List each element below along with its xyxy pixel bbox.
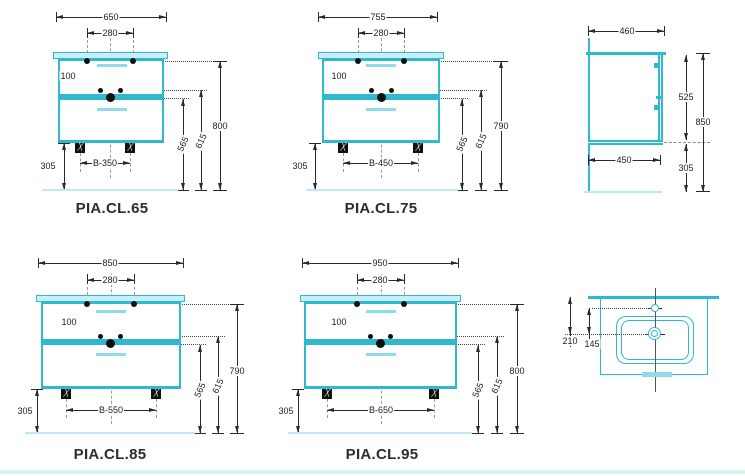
floor-line [288,432,472,434]
arrow-icon [176,261,183,265]
tick [475,190,487,191]
arrow-icon [568,327,572,334]
model-label: PIA.CL.85 [74,446,147,463]
arrow-icon [587,308,591,315]
mount-point [389,88,394,93]
dim-floor-gap-value: 305 [16,406,33,416]
countertop [53,52,168,59]
arrow-icon [397,278,404,282]
arrow-icon [149,408,156,412]
caster-foot-icon [429,389,439,399]
arrow-icon [495,336,499,343]
tick [404,28,405,38]
arrow-icon [684,133,688,140]
dim-bottom-depth-value: 450 [615,155,632,165]
arrow-icon [479,90,483,97]
tick [230,304,244,305]
arrow-icon [216,426,220,433]
ext-line [434,399,435,418]
arrow-icon [587,327,591,334]
tick [213,190,227,191]
arrow-icon [296,389,300,396]
dim-feet-span-value: B-350 [92,158,118,168]
tick [133,28,134,38]
arrow-icon [327,408,334,412]
arrow-icon [499,183,503,190]
arrow-icon [357,278,364,282]
mount-point [118,88,123,93]
arrow-icon [35,389,39,396]
arrow-icon [358,31,365,35]
wall-line [588,38,590,192]
caster-foot-icon [413,143,423,153]
arrow-icon [199,183,203,190]
floor-line [42,189,178,191]
tick [404,274,405,284]
arrow-icon [181,99,185,106]
arrow-icon [127,278,134,282]
arrow-icon [235,304,239,311]
dim-width-value: 755 [369,12,386,22]
mount-point [388,334,393,339]
arrow-icon [198,345,202,352]
tick [510,433,524,434]
arrow-icon [198,426,202,433]
arrow-icon [80,161,87,165]
arrow-icon [460,99,464,106]
arrow-icon [588,29,595,33]
arrow-icon [684,185,688,192]
tick [292,389,304,390]
dim-drain-height-value: 565 [192,380,208,400]
arrow-icon [684,144,688,151]
dim-mid-height-value: 615 [210,376,226,396]
arrow-icon [460,183,464,190]
dim-floor-gap-value: 305 [277,406,294,416]
model-label: PIA.CL.95 [346,446,419,463]
dim-faucet-span-value: 280 [372,28,389,38]
arrow-icon [451,261,458,265]
arrow-icon [126,31,133,35]
tick [166,12,167,22]
dim-floor-gap-value: 305 [677,163,694,173]
tick [472,433,484,434]
arrow-icon [87,31,94,35]
faucet-hole-marker [354,301,360,307]
countertop [586,52,666,55]
drain-marker [377,93,386,102]
floor-line [25,432,195,434]
dim-faucet-offset-value: 100 [330,317,347,327]
countertop [318,52,444,59]
dim-floor-gap-value: 305 [39,161,56,171]
dim-mid-height-value: 615 [193,131,209,151]
dim-feet-span-value: B-650 [368,405,394,415]
dim-drain-height-value: 565 [470,380,486,400]
countertop [300,295,461,302]
leader-line [592,308,651,309]
arrow-icon [568,297,572,304]
arrow-icon [218,183,222,190]
arrow-icon [56,15,63,19]
arrow-icon [87,278,94,282]
ext-line [130,153,131,172]
floor-line [306,189,458,191]
arrow-icon [653,158,660,162]
cabinet-bottom [588,140,663,145]
arrow-icon [343,161,350,165]
arrow-icon [159,15,166,19]
dim-faucet-offset-value: 100 [59,71,76,81]
tick [230,433,244,434]
tick [212,433,224,434]
arrow-icon [123,161,130,165]
dim-total-height-value: 790 [228,366,245,376]
arrow-icon [38,261,45,265]
arrow-icon [499,61,503,68]
countertop [36,295,185,302]
hinge-mark [654,105,658,110]
floor-line [584,191,662,193]
arrow-icon [495,426,499,433]
tick [195,190,207,191]
dim-drain-height-value: 565 [175,134,191,154]
model-label: PIA.CL.75 [345,200,418,217]
drain-marker [106,339,115,348]
mount-point [98,88,103,93]
caster-foot-icon [322,389,332,399]
tick [696,53,710,54]
arrow-icon [476,426,480,433]
faucet-hole-marker [401,301,407,307]
hinge-mark [654,63,658,68]
tick [194,433,206,434]
drawer-handle [366,310,396,313]
arrow-icon [313,143,317,150]
tick [664,26,665,36]
caster-foot-icon [125,143,135,153]
tick [31,389,43,390]
arrow-icon [588,158,595,162]
dim-mid-height-value: 615 [489,376,505,396]
dim-faucet-offset-value: 100 [60,317,77,327]
dim-width-value: 950 [371,258,388,268]
dim-total-height-value: 800 [508,366,525,376]
drawer-handle [97,108,127,111]
divider-mark [656,96,662,99]
arrow-icon [235,426,239,433]
tick [494,61,508,62]
caster-foot-icon [75,143,85,153]
arrow-icon [318,15,325,19]
arrow-icon [66,408,73,412]
tick [491,433,503,434]
ext-line [156,399,157,418]
tick [134,274,135,284]
arrow-icon [515,426,519,433]
dim-faucet-span-value: 280 [101,275,118,285]
tick [58,143,70,144]
mount-point [98,334,103,339]
tick [510,304,524,305]
arrow-icon [181,183,185,190]
leader-line [565,334,648,335]
dim-faucet-to-drain-value: 145 [583,339,600,349]
drawer-handle [642,372,672,377]
dim-faucet-offset-value: 100 [330,71,347,81]
arrow-icon [427,408,434,412]
caster-foot-icon [338,143,348,153]
bottom-border-band [0,470,745,474]
dim-mid-height-value: 615 [473,131,489,151]
drawer-handle [366,108,396,111]
arrow-icon [684,55,688,62]
faucet-hole-marker [130,58,136,64]
faucet-hole-marker [131,301,137,307]
arrow-icon [216,336,220,343]
technical-drawing-sheet: 650 280 100 565 [0,0,745,476]
tick [660,155,661,165]
dim-feet-span-value: B-550 [98,405,124,415]
dim-faucet-span-value: 280 [101,28,118,38]
dim-drain-from-back-value: 210 [561,336,578,346]
dim-total-height-value: 800 [211,121,228,131]
drain-marker [376,339,385,348]
faucet-hole-marker [84,58,90,64]
mount-point [118,334,123,339]
faucet-hole-marker [84,301,90,307]
arrow-icon [515,304,519,311]
caster-foot-icon [151,389,161,399]
arrow-icon [199,90,203,97]
arrow-icon [430,15,437,19]
dim-width-value: 650 [102,12,119,22]
drawer-handle [96,353,126,356]
drain-inner [651,330,658,337]
tick [458,258,459,268]
faucet-hole-marker [355,58,361,64]
ext-line [418,153,419,172]
mount-point [369,88,374,93]
arrow-icon [411,161,418,165]
caster-foot-icon [61,389,71,399]
arrow-icon [479,183,483,190]
arrow-icon [701,53,705,60]
tick [309,143,321,144]
tick [183,258,184,268]
dim-feet-span-value: B-450 [368,158,394,168]
dim-total-height-value: 790 [492,121,509,131]
tick [177,190,189,191]
arrow-icon [476,345,480,352]
drawer-handle [97,64,127,67]
dim-drain-height-value: 565 [454,134,470,154]
tick [696,191,710,192]
arrow-icon [657,29,664,33]
arrow-icon [397,31,404,35]
model-label: PIA.CL.65 [76,200,149,217]
arrow-icon [302,261,309,265]
tick [494,190,508,191]
dim-total-height-value: 850 [694,117,711,127]
faucet-hole [651,304,659,312]
arrow-icon [62,143,66,150]
drawer-handle [366,353,396,356]
mount-point [368,334,373,339]
dim-body-height-value: 525 [677,92,694,102]
tick [213,61,227,62]
tick [437,12,438,22]
dim-faucet-span-value: 280 [371,275,388,285]
dim-floor-gap-value: 305 [291,161,308,171]
dim-width-value: 850 [101,258,118,268]
arrow-icon [218,61,222,68]
drawer-handle [366,64,396,67]
dim-depth-value: 460 [618,26,635,36]
drawer-handle [96,310,126,313]
drain-marker [106,93,115,102]
faucet-hole-marker [401,58,407,64]
